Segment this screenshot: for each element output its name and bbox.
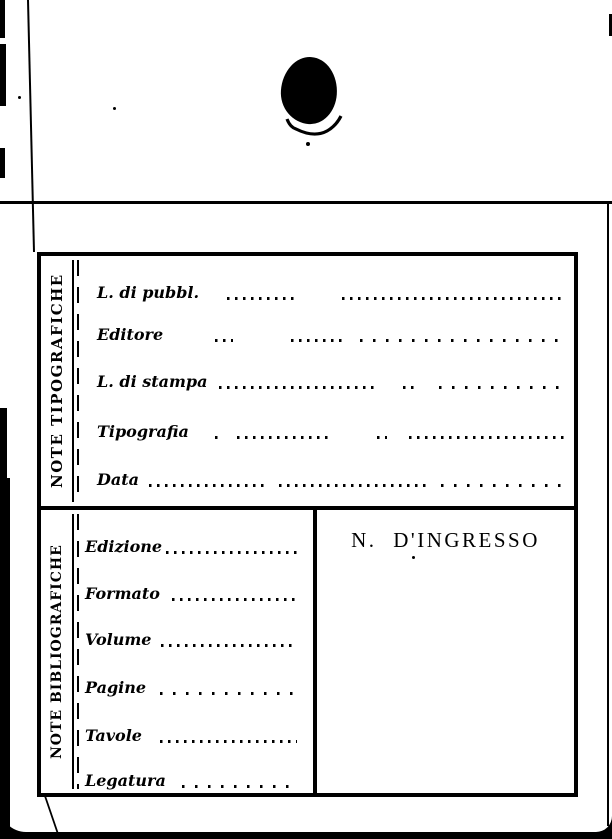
ingresso-divider: [313, 510, 317, 793]
dotted-leader: [182, 785, 297, 788]
field-row: Editore: [97, 324, 564, 346]
dotted-leader: [403, 386, 415, 389]
dotted-leader: [360, 339, 564, 342]
section-divider: [41, 506, 574, 510]
field-row: Volume: [85, 629, 297, 651]
catalog-table: NOTE TIPOGRAFICHE L. di pubbl. Editore: [37, 252, 578, 797]
column-divider: [72, 260, 74, 502]
dotted-leader: [279, 484, 429, 487]
field-label: L. di pubbl.: [97, 282, 199, 304]
field-label: Editore: [97, 324, 163, 346]
field-row: Tipografia: [97, 421, 564, 443]
dotted-leader: [377, 436, 387, 439]
column-divider: [72, 514, 74, 789]
field-row: Formato: [85, 583, 297, 605]
dotted-leader: [160, 740, 297, 743]
field-label: Data: [97, 469, 139, 491]
scanned-page: NOTE TIPOGRAFICHE L. di pubbl. Editore: [0, 0, 612, 839]
field-label: Volume: [85, 629, 151, 651]
field-row: Data: [97, 469, 564, 491]
field-row: Pagine: [85, 677, 297, 699]
field-row: L. di pubbl.: [97, 282, 564, 304]
field-label: Formato: [85, 583, 160, 605]
ink-speck: [412, 556, 415, 559]
dotted-leader: [342, 297, 564, 300]
dotted-leader: [215, 436, 225, 439]
dotted-leader: [161, 644, 297, 647]
column-divider: [77, 260, 79, 502]
dotted-leader: [439, 386, 564, 389]
field-label: Tavole: [85, 725, 142, 747]
ink-speck: [113, 107, 116, 110]
field-row: Tavole: [85, 725, 297, 747]
dotted-leader: [291, 339, 346, 342]
dotted-leader: [227, 297, 297, 300]
dotted-leader: [219, 386, 377, 389]
field-label: Edizione: [85, 536, 162, 558]
dotted-leader: [172, 598, 297, 601]
field-label: Pagine: [85, 677, 146, 699]
column-divider: [77, 514, 79, 789]
field-label: Legatura: [85, 770, 166, 792]
dotted-leader: [160, 692, 297, 695]
field-label: L. di stampa: [97, 371, 207, 393]
field-row: L. di stampa: [97, 371, 564, 393]
section-side-label: NOTE BIBLIOGRAFICHE: [42, 514, 72, 789]
field-row: Edizione: [85, 536, 297, 558]
dotted-leader: [409, 436, 564, 439]
ink-speck: [306, 142, 310, 146]
ingresso-label: N. D'INGRESSO: [321, 528, 570, 553]
ink-speck: [18, 96, 21, 99]
dotted-leader: [237, 436, 333, 439]
dotted-leader: [215, 339, 233, 342]
section-side-label: NOTE TIPOGRAFICHE: [42, 260, 72, 502]
field-row: Legatura: [85, 770, 297, 792]
field-label: Tipografia: [97, 421, 189, 443]
dotted-leader: [166, 551, 297, 554]
catalog-card: NOTE TIPOGRAFICHE L. di pubbl. Editore: [0, 0, 612, 832]
dotted-leader: [149, 484, 269, 487]
dotted-leader: [441, 484, 564, 487]
ink-blot-smudge: [280, 104, 350, 140]
